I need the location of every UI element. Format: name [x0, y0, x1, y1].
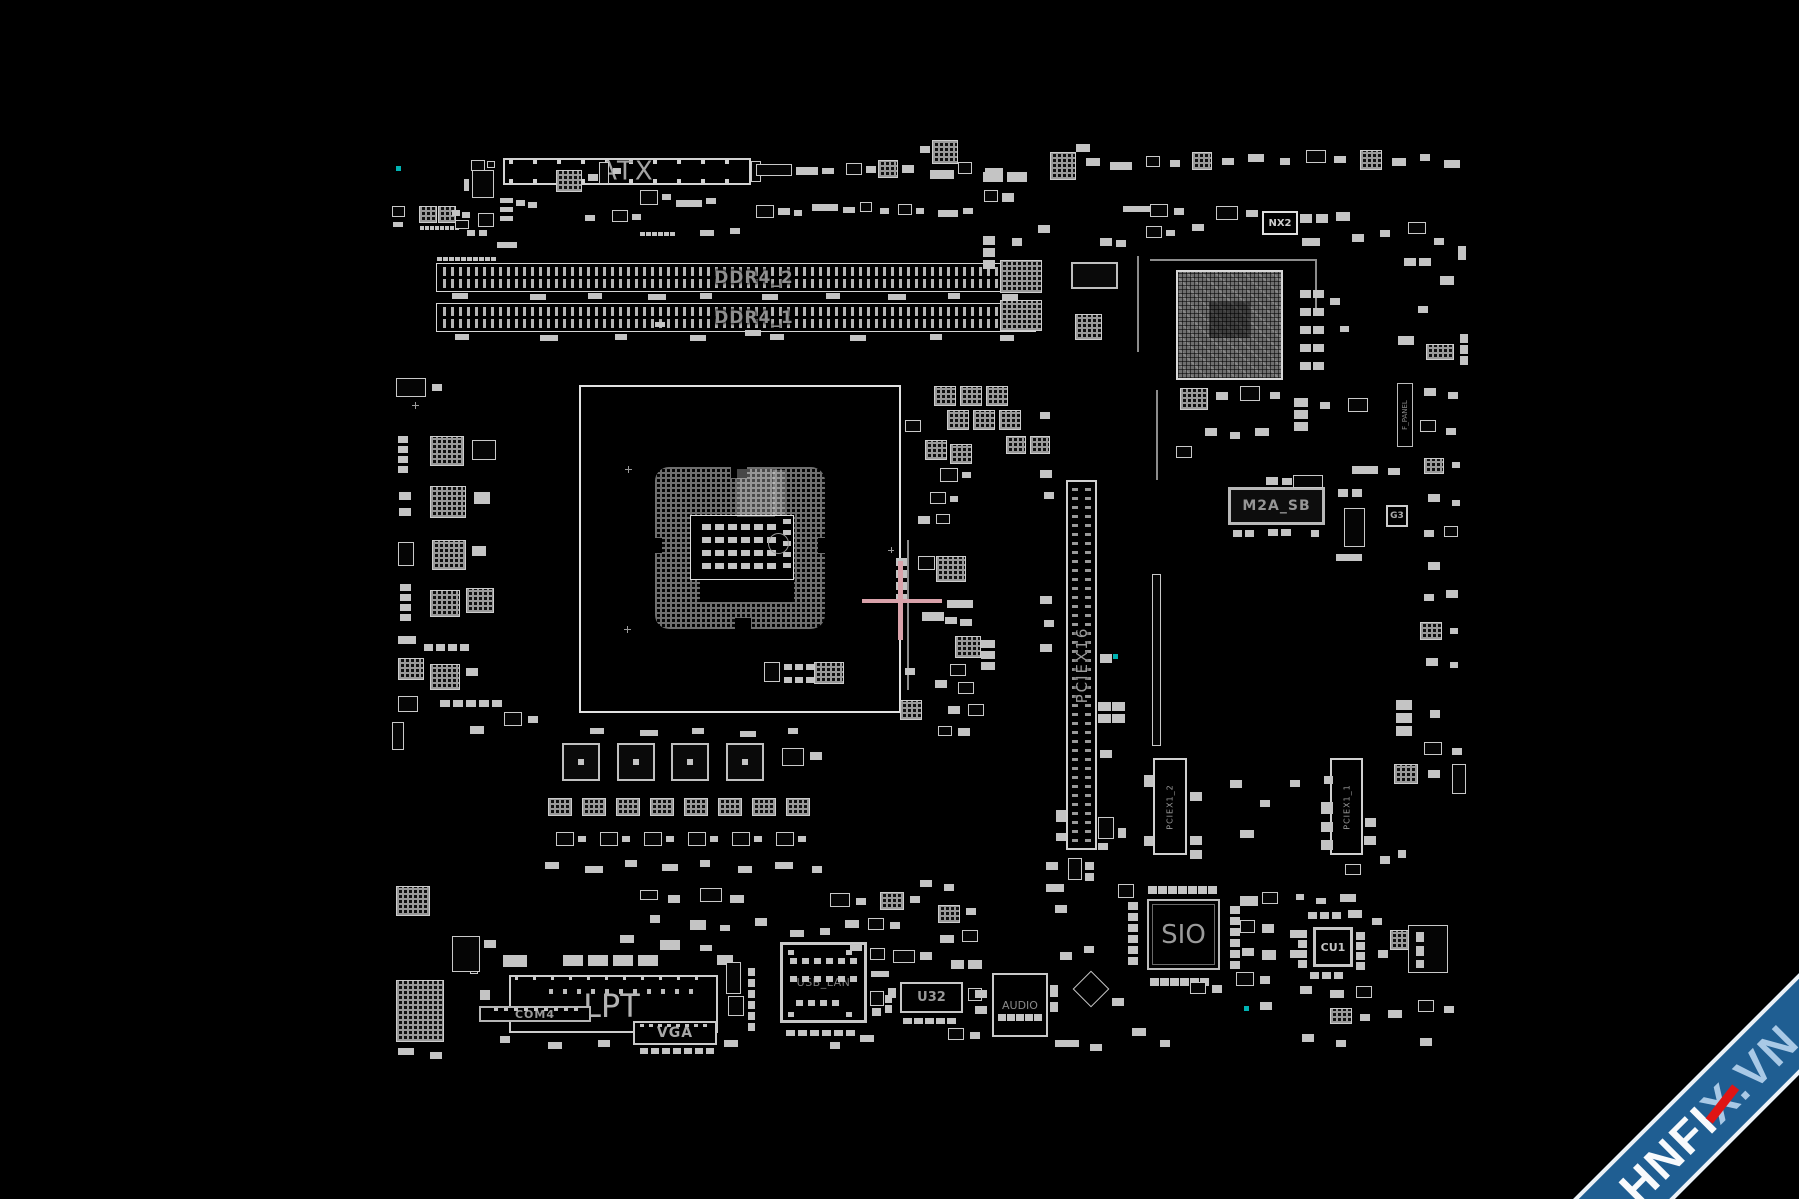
- component: [948, 706, 960, 714]
- component: [396, 980, 444, 1042]
- component: [1208, 886, 1217, 894]
- component: [1428, 770, 1440, 778]
- component: [1160, 1040, 1170, 1047]
- component: [1000, 335, 1014, 341]
- component: [1233, 530, 1242, 537]
- component: [950, 496, 958, 502]
- component: [905, 420, 921, 432]
- component: [1440, 276, 1454, 285]
- component: [888, 988, 896, 998]
- component: [466, 700, 476, 707]
- component: [936, 514, 950, 524]
- component: [487, 161, 495, 168]
- component: [1428, 494, 1440, 502]
- component: [651, 1048, 659, 1054]
- component: [437, 257, 442, 261]
- component: [1313, 344, 1324, 352]
- component: [436, 644, 445, 651]
- vga-connector[interactable]: VGA: [633, 1021, 717, 1045]
- socket-cavity: [690, 515, 794, 580]
- cu1-chip[interactable]: CU1: [1313, 927, 1353, 967]
- component: [516, 200, 525, 206]
- component: [1280, 158, 1290, 165]
- boardview-canvas[interactable]: ATX DDR4_2 DDR4_1 PCIEX16 NX2 M2A_SB PCI…: [0, 0, 1799, 1199]
- component: [1230, 906, 1240, 914]
- component: [1311, 530, 1319, 537]
- component: [1128, 924, 1138, 932]
- component: [562, 743, 600, 781]
- component: [1198, 886, 1207, 894]
- component: [940, 468, 958, 482]
- component: [1075, 314, 1102, 340]
- component: [748, 968, 755, 976]
- component: [958, 682, 974, 694]
- atx-connector[interactable]: ATX: [503, 158, 751, 185]
- component: [464, 179, 469, 191]
- component: [485, 257, 490, 261]
- component: [947, 410, 969, 430]
- component: [1100, 654, 1112, 663]
- component: [860, 202, 872, 212]
- component: [981, 662, 995, 670]
- vga-label: VGA: [657, 1025, 693, 1041]
- component: [1260, 976, 1270, 984]
- component: [1352, 466, 1378, 474]
- component: [1170, 978, 1179, 986]
- component: [1160, 978, 1169, 986]
- component: [1098, 843, 1108, 850]
- component: [1458, 246, 1466, 260]
- component: [662, 194, 671, 200]
- component: [1418, 1000, 1434, 1012]
- component: [420, 226, 424, 230]
- component: [856, 898, 866, 905]
- component: [1396, 726, 1412, 736]
- component: [810, 752, 822, 760]
- component: [1300, 362, 1311, 370]
- component: [1240, 920, 1255, 933]
- component: [1330, 990, 1344, 998]
- component: [470, 726, 484, 734]
- component: [1060, 952, 1072, 960]
- component: [1156, 390, 1158, 480]
- component: [948, 293, 960, 299]
- component: [1378, 950, 1388, 958]
- component: [1424, 594, 1434, 601]
- component: [692, 728, 704, 734]
- component: [1260, 1002, 1272, 1010]
- component: [425, 226, 429, 230]
- component: [688, 832, 706, 846]
- component: [944, 884, 954, 891]
- component: [448, 644, 457, 651]
- component: [1348, 910, 1362, 918]
- component: [951, 960, 964, 969]
- component: [438, 206, 456, 223]
- component: [1178, 886, 1187, 894]
- component: [1290, 950, 1300, 958]
- component: [960, 619, 972, 626]
- component: [1190, 836, 1202, 845]
- component: [652, 232, 657, 236]
- component: [563, 955, 583, 966]
- pciex1-2-slot[interactable]: PCIEX1_2: [1153, 758, 1187, 855]
- component: [445, 226, 449, 230]
- component: [922, 612, 944, 621]
- component: [930, 492, 946, 504]
- component: [622, 836, 630, 842]
- component: [940, 935, 954, 943]
- component: [970, 1032, 980, 1039]
- component: [497, 242, 517, 248]
- component: [871, 971, 889, 977]
- component: [710, 836, 718, 842]
- component: [1290, 930, 1300, 938]
- component: [947, 1018, 956, 1024]
- component: [778, 208, 790, 215]
- component: [430, 436, 464, 466]
- component: [786, 1030, 795, 1036]
- m2a-sb-connector[interactable]: M2A_SB: [1228, 487, 1325, 525]
- component: [1190, 978, 1199, 986]
- component: [455, 257, 460, 261]
- component: [1056, 833, 1066, 841]
- component: [1116, 240, 1126, 247]
- component: [1242, 948, 1254, 956]
- component: [1190, 982, 1206, 994]
- component: [1388, 1010, 1402, 1018]
- component: [846, 163, 862, 175]
- component: [1170, 160, 1180, 167]
- component: [752, 798, 776, 816]
- component: [1420, 154, 1430, 161]
- component: [471, 160, 485, 171]
- component: [973, 410, 995, 430]
- component: [625, 860, 637, 867]
- component: [1308, 912, 1317, 919]
- pciex16-slot[interactable]: PCIEX16: [1066, 480, 1097, 850]
- component: [1128, 957, 1138, 965]
- component: [484, 940, 496, 948]
- component: [690, 335, 706, 341]
- component: [673, 1048, 681, 1054]
- component: [1262, 892, 1278, 904]
- component: [585, 866, 603, 873]
- component: [754, 836, 762, 842]
- component: [1294, 398, 1308, 407]
- component: [820, 928, 830, 935]
- component: [1112, 714, 1125, 723]
- component: [700, 945, 712, 951]
- component: [504, 712, 522, 726]
- component: [843, 207, 855, 213]
- component: [1424, 458, 1444, 474]
- component: [578, 836, 586, 842]
- component: [920, 146, 930, 153]
- component: [981, 640, 995, 648]
- component: [658, 232, 663, 236]
- component: [1086, 158, 1100, 166]
- component: [1281, 529, 1291, 536]
- front-panel-header[interactable]: F_PANEL: [1397, 383, 1413, 447]
- component: [412, 402, 419, 409]
- component: [400, 604, 411, 611]
- component: [1320, 912, 1329, 919]
- component: [676, 200, 702, 207]
- component: [1205, 428, 1217, 436]
- component: [1216, 206, 1238, 220]
- component: [1240, 896, 1258, 906]
- component: [860, 1035, 874, 1042]
- component: [830, 893, 850, 907]
- component: [617, 743, 655, 781]
- component: [968, 960, 982, 969]
- component: [435, 226, 439, 230]
- component: [925, 440, 947, 460]
- component: [1148, 886, 1157, 894]
- component: [1012, 238, 1022, 246]
- component: [1345, 864, 1361, 875]
- component: [1332, 912, 1341, 919]
- component: [822, 1030, 831, 1036]
- component: [907, 540, 909, 690]
- component: [742, 759, 748, 765]
- component: [500, 216, 513, 221]
- component: [748, 990, 755, 998]
- component: [1313, 362, 1324, 370]
- component: [1244, 1006, 1249, 1011]
- com4-connector[interactable]: COM4: [479, 1006, 591, 1022]
- chipset-bga[interactable]: [1176, 270, 1283, 380]
- component: [1068, 858, 1082, 880]
- component: [640, 890, 658, 900]
- component: [1420, 420, 1436, 432]
- component: [918, 556, 935, 570]
- component: [1398, 336, 1414, 345]
- component: [400, 584, 411, 591]
- component: [1128, 902, 1138, 910]
- component: [934, 386, 956, 406]
- component: [432, 384, 442, 391]
- component: [1002, 294, 1018, 300]
- component: [1150, 204, 1168, 217]
- component: [985, 168, 1003, 175]
- component: [1340, 894, 1356, 902]
- component: [945, 617, 957, 624]
- component: [396, 166, 401, 171]
- component: [398, 436, 408, 443]
- component: [1290, 780, 1300, 787]
- lpt-label: LPT: [583, 987, 640, 1025]
- component: [1192, 152, 1212, 170]
- u32-component[interactable]: U32: [900, 982, 963, 1013]
- component: [830, 1042, 840, 1049]
- component: [1230, 928, 1240, 936]
- component: [756, 164, 792, 176]
- component: [662, 1048, 670, 1054]
- component: [958, 162, 972, 174]
- component: [1430, 710, 1440, 718]
- g3-label: G3: [1390, 511, 1404, 521]
- component: [467, 230, 475, 236]
- component: [893, 950, 915, 963]
- component: [1180, 388, 1208, 410]
- component: [1300, 344, 1311, 352]
- component: [726, 962, 741, 994]
- component: [1338, 489, 1348, 497]
- component: [730, 895, 744, 903]
- component: [1123, 206, 1157, 212]
- component: [878, 160, 898, 178]
- component: [1302, 1034, 1314, 1042]
- component: [866, 166, 876, 173]
- component: [1044, 492, 1054, 499]
- component: [786, 798, 810, 816]
- component: [1150, 259, 1317, 261]
- component: [620, 935, 634, 943]
- component: [1188, 886, 1197, 894]
- component: [1365, 818, 1376, 827]
- component: [548, 1042, 562, 1049]
- component: [1248, 154, 1264, 162]
- component: [900, 700, 922, 720]
- component: [1356, 962, 1365, 970]
- component: [724, 1040, 738, 1047]
- component: [1330, 1008, 1352, 1024]
- component: [920, 880, 932, 887]
- component: [1216, 392, 1228, 400]
- component: [1230, 939, 1240, 947]
- component: [762, 294, 778, 300]
- component: [1394, 764, 1418, 784]
- component: [812, 866, 822, 873]
- component: [1212, 985, 1222, 993]
- component: [975, 1006, 987, 1014]
- component: [455, 226, 459, 230]
- component: [810, 1030, 819, 1036]
- component: [398, 1048, 414, 1055]
- component: [1110, 162, 1132, 170]
- ddr4-slot-1[interactable]: DDR4_1: [436, 303, 1036, 332]
- component: [1144, 775, 1153, 787]
- component: [396, 378, 426, 397]
- component: [880, 892, 904, 910]
- sio-chip[interactable]: SIO: [1147, 899, 1220, 970]
- component: [1322, 972, 1331, 979]
- component: [1146, 156, 1160, 167]
- component: [1152, 574, 1161, 746]
- component: [1452, 500, 1460, 506]
- pciex1-1-slot[interactable]: PCIEX1_1: [1330, 758, 1363, 855]
- component: [449, 257, 454, 261]
- component: [983, 172, 1003, 182]
- component: [1100, 238, 1112, 246]
- component: [950, 664, 966, 676]
- component: [479, 230, 487, 236]
- component: [898, 204, 912, 215]
- component: [1040, 470, 1052, 478]
- component: [1118, 884, 1134, 898]
- component: [885, 995, 892, 1003]
- component: [788, 728, 798, 734]
- component: [1300, 986, 1312, 994]
- usb-lan-label: USB_LAN: [797, 976, 851, 989]
- component: [600, 832, 618, 846]
- component: [613, 955, 633, 966]
- component: [588, 955, 608, 966]
- component: [1460, 334, 1468, 343]
- component: [1040, 644, 1052, 652]
- component: [588, 293, 602, 299]
- component: [870, 948, 885, 960]
- audio-connector[interactable]: AUDIO: [992, 973, 1048, 1037]
- component: [1334, 972, 1343, 979]
- component: [1240, 386, 1260, 401]
- component: [1424, 388, 1436, 396]
- component: [1336, 1040, 1346, 1047]
- g3-component[interactable]: G3: [1386, 505, 1408, 527]
- component: [1050, 152, 1076, 180]
- component: [1007, 172, 1027, 182]
- component: [1085, 862, 1094, 870]
- nx2-component[interactable]: NX2: [1262, 211, 1298, 235]
- component: [548, 798, 572, 816]
- watermark-ribbon: HNFIX.VN: [1532, 937, 1799, 1199]
- component: [1128, 946, 1138, 954]
- component: [1352, 234, 1364, 242]
- component: [700, 230, 714, 236]
- component: [960, 386, 982, 406]
- component: [640, 232, 645, 236]
- usb-lan-connector[interactable]: USB_LAN: [780, 942, 867, 1023]
- component: [966, 908, 976, 915]
- component: [598, 1040, 610, 1047]
- component: [1302, 238, 1320, 246]
- component: [1050, 1002, 1058, 1012]
- component: [717, 955, 733, 965]
- component: [1044, 620, 1054, 627]
- front-panel-label: F_PANEL: [1401, 400, 1409, 430]
- component: [775, 862, 793, 869]
- component: [812, 204, 838, 211]
- component: [1260, 800, 1270, 807]
- component: [1180, 978, 1189, 986]
- component: [748, 1012, 755, 1020]
- ddr4-slot-2[interactable]: DDR4_2: [436, 263, 1036, 292]
- component: [1419, 258, 1431, 266]
- component: [1046, 884, 1058, 892]
- component: [1452, 764, 1466, 794]
- component: [914, 1018, 923, 1024]
- component: [1090, 1044, 1102, 1051]
- component: [1388, 468, 1400, 475]
- component: [1444, 526, 1458, 537]
- crosshair-vertical: [898, 561, 903, 640]
- component: [1268, 529, 1278, 536]
- component: [500, 207, 513, 212]
- component: [948, 1028, 964, 1040]
- component: [1416, 960, 1424, 968]
- component: [640, 1048, 648, 1054]
- ddr4-1-label: DDR4_1: [714, 308, 793, 328]
- component: [530, 294, 546, 300]
- component: [1230, 917, 1240, 925]
- component: [1038, 225, 1050, 233]
- component: [644, 832, 662, 846]
- component: [430, 664, 460, 690]
- component: [1098, 714, 1111, 723]
- component: [885, 1005, 892, 1013]
